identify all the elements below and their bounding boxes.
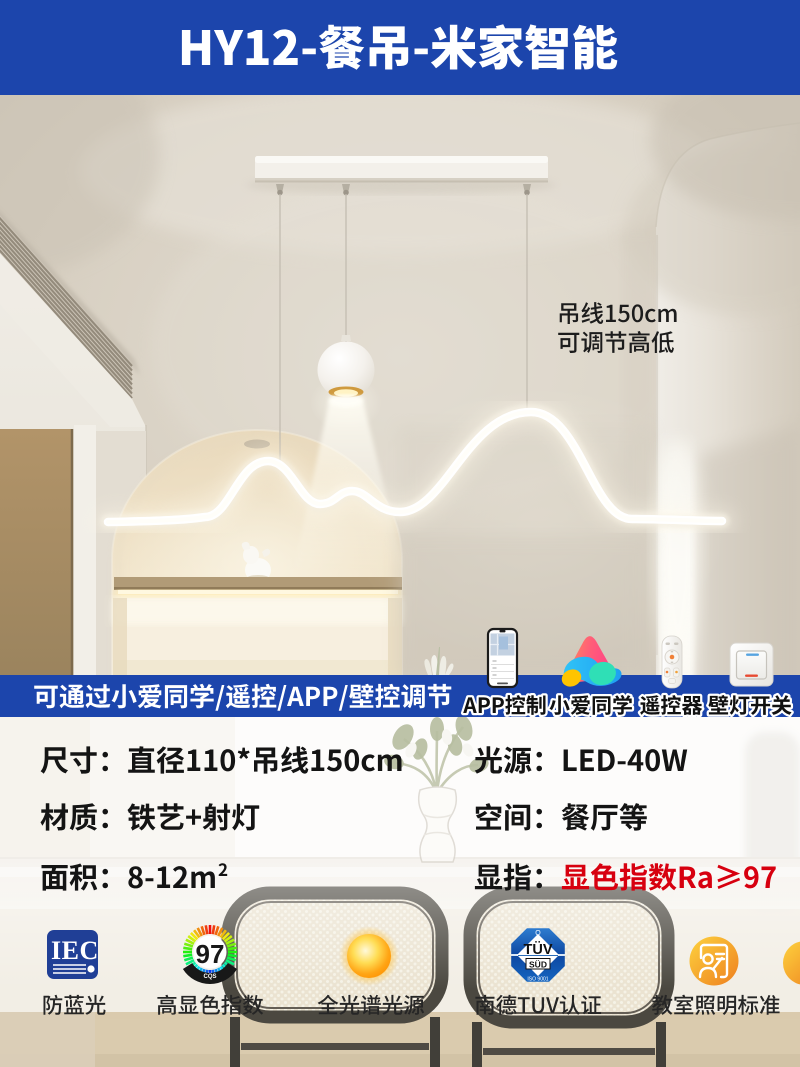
svg-text:Q: Q xyxy=(535,930,541,937)
svg-text:97: 97 xyxy=(196,939,225,969)
svg-text:CQS: CQS xyxy=(203,974,216,980)
svg-text:IEC: IEC xyxy=(51,936,99,965)
svg-text:SÜD: SÜD xyxy=(529,960,547,970)
svg-text:TÜV: TÜV xyxy=(524,941,553,958)
svg-text:ISO 9001: ISO 9001 xyxy=(527,977,548,983)
